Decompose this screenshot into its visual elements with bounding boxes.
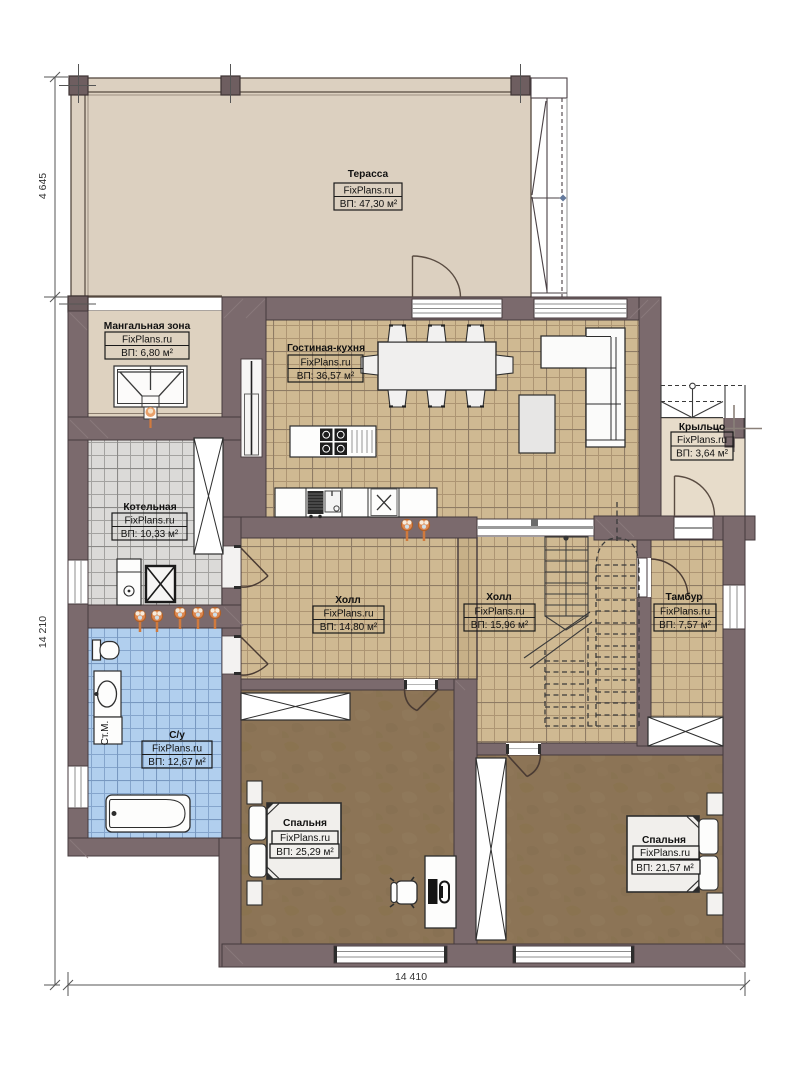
svg-text:Ст.М.: Ст.М. — [100, 721, 111, 746]
svg-text:ВП: 47,30 м²: ВП: 47,30 м² — [340, 199, 398, 210]
svg-text:ВП: 15,96 м²: ВП: 15,96 м² — [471, 620, 529, 631]
svg-text:14 210: 14 210 — [37, 616, 49, 648]
svg-text:Крыльцо: Крыльцо — [679, 422, 725, 433]
svg-text:FixPlans.ru: FixPlans.ru — [122, 335, 172, 346]
svg-text:ВП: 10,33 м²: ВП: 10,33 м² — [121, 529, 179, 540]
svg-text:С/у: С/у — [169, 730, 185, 741]
svg-text:ВП: 12,67 м²: ВП: 12,67 м² — [148, 757, 206, 768]
svg-text:Гостиная-кухня: Гостиная-кухня — [287, 343, 365, 354]
svg-text:FixPlans.ru: FixPlans.ru — [474, 607, 524, 618]
svg-text:FixPlans.ru: FixPlans.ru — [660, 607, 710, 618]
svg-text:FixPlans.ru: FixPlans.ru — [152, 744, 202, 755]
svg-text:Холл: Холл — [335, 595, 361, 606]
svg-text:Спальня: Спальня — [642, 835, 686, 846]
svg-text:Котельная: Котельная — [123, 502, 176, 513]
svg-text:Мангальная зона: Мангальная зона — [104, 321, 191, 332]
svg-text:ВП: 25,29 м²: ВП: 25,29 м² — [276, 847, 334, 858]
svg-text:FixPlans.ru: FixPlans.ru — [280, 833, 330, 844]
svg-text:FixPlans.ru: FixPlans.ru — [343, 186, 393, 197]
svg-text:14 410: 14 410 — [395, 971, 427, 983]
svg-text:4 645: 4 645 — [37, 173, 49, 199]
svg-text:Тамбур: Тамбур — [666, 591, 703, 603]
svg-text:ВП: 6,80 м²: ВП: 6,80 м² — [121, 348, 174, 359]
svg-text:Терасса: Терасса — [348, 169, 389, 180]
svg-text:ВП: 21,57 м²: ВП: 21,57 м² — [636, 863, 694, 874]
svg-text:FixPlans.ru: FixPlans.ru — [300, 358, 350, 369]
svg-text:FixPlans.ru: FixPlans.ru — [677, 435, 727, 446]
svg-text:FixPlans.ru: FixPlans.ru — [640, 848, 690, 859]
svg-text:Спальня: Спальня — [283, 818, 327, 829]
svg-text:Холл: Холл — [486, 592, 512, 603]
svg-text:ВП: 36,57 м²: ВП: 36,57 м² — [297, 371, 355, 382]
svg-text:ВП: 7,57 м²: ВП: 7,57 м² — [659, 620, 712, 631]
svg-text:FixPlans.ru: FixPlans.ru — [323, 609, 373, 620]
svg-text:ВП: 14,80 м²: ВП: 14,80 м² — [320, 622, 378, 633]
svg-text:ВП: 3,64 м²: ВП: 3,64 м² — [676, 449, 729, 460]
svg-text:FixPlans.ru: FixPlans.ru — [124, 516, 174, 527]
